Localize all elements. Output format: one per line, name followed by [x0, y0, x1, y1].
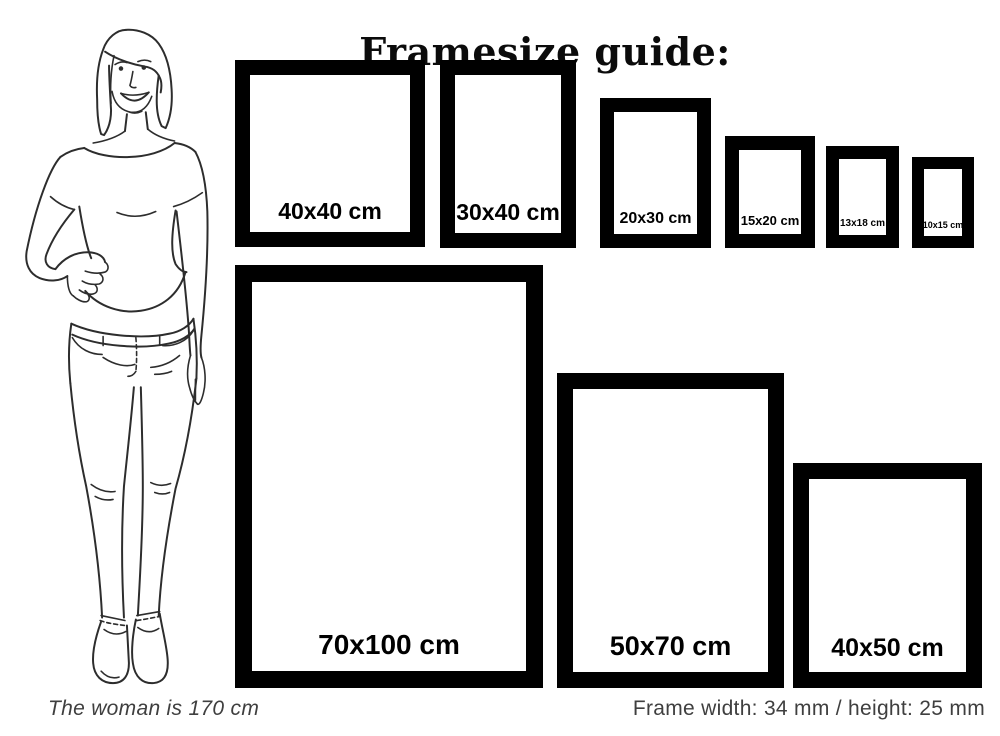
frame-size-label: 20x30 cm [584, 210, 727, 228]
frame-40x50: 40x50 cm [793, 463, 982, 688]
frame-15x20: 15x20 cm [725, 136, 815, 248]
frame-size-label: 70x100 cm [222, 629, 556, 661]
frame-40x40: 40x40 cm [235, 60, 425, 247]
frame-50x70: 50x70 cm [557, 373, 784, 688]
woman-illustration [5, 8, 230, 693]
frame-70x100: 70x100 cm [235, 265, 543, 688]
frame-size-label: 40x50 cm [779, 634, 996, 663]
frame-size-label: 30x40 cm [425, 199, 591, 226]
frame-spec-note: Frame width: 34 mm / height: 25 mm [633, 697, 985, 721]
framesize-guide-page: Framesize guide: [0, 0, 1000, 736]
woman-height-note: The woman is 170 cm [48, 697, 259, 721]
frame-size-label: 40x40 cm [220, 198, 440, 225]
frame-10x15: 10x15 cm [912, 157, 974, 248]
frame-13x18: 13x18 cm [826, 146, 899, 248]
frame-size-label: 10x15 cm [894, 220, 992, 230]
frame-30x40: 30x40 cm [440, 60, 576, 248]
frame-size-label: 50x70 cm [543, 631, 798, 662]
frame-20x30: 20x30 cm [600, 98, 711, 248]
